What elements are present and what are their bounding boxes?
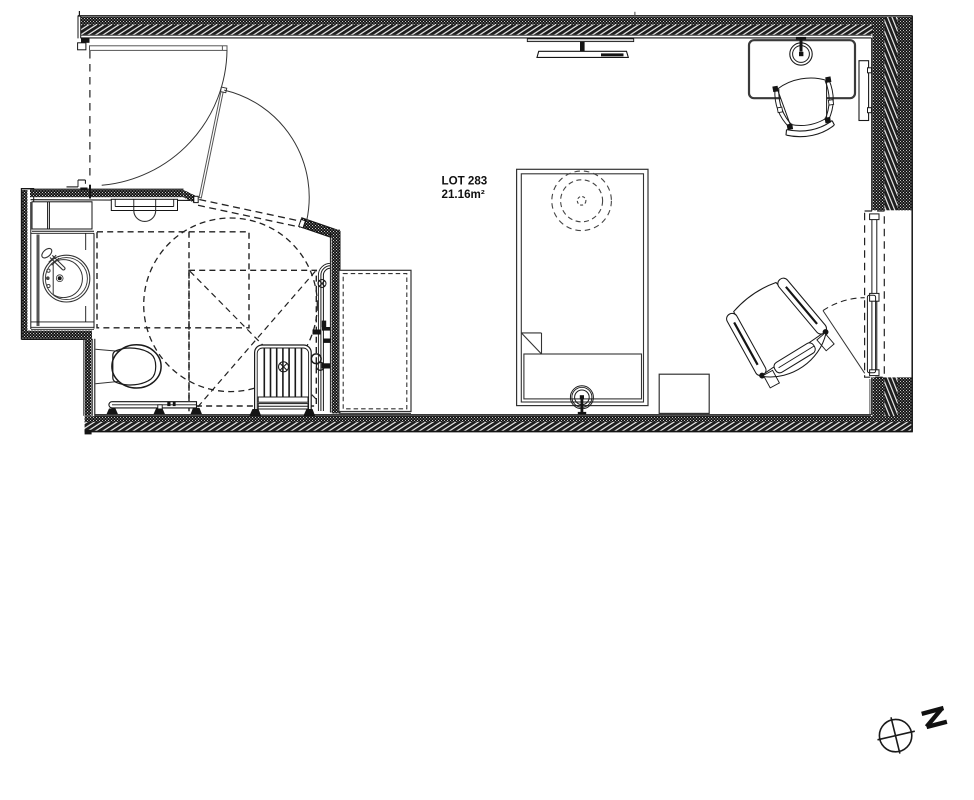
svg-text:21.16m²: 21.16m² — [442, 188, 485, 201]
svg-text:LOT 283: LOT 283 — [442, 175, 488, 188]
